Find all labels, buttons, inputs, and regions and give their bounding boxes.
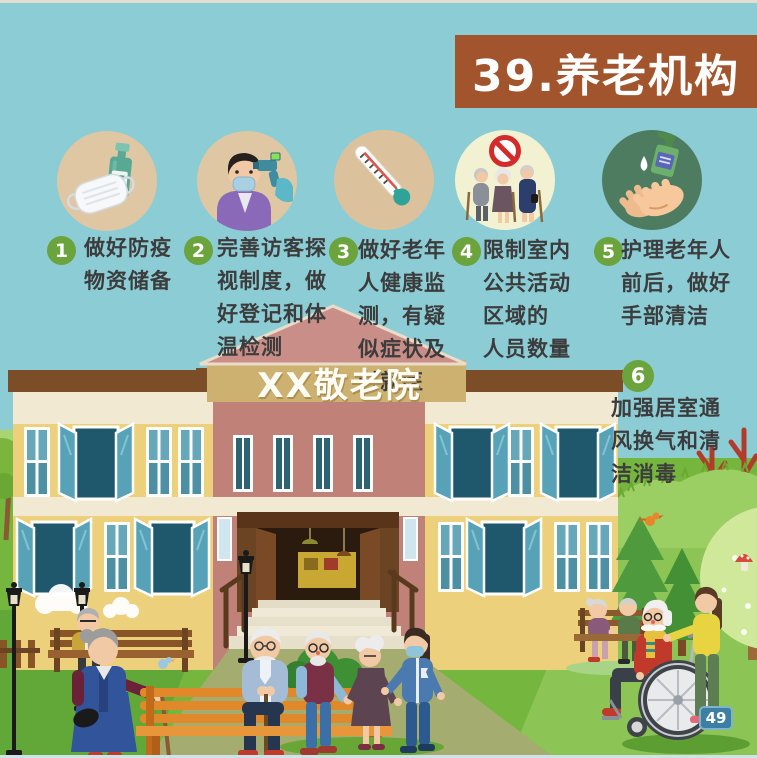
fence <box>0 640 40 668</box>
tip-1-text: 做好防疫 物资储备 <box>84 232 172 298</box>
poster-title: 39.养老机构 <box>472 40 740 104</box>
tip-2-number: 2 <box>184 236 213 265</box>
limit-indoor-crowd-icon <box>455 130 555 230</box>
icon-circle-2 <box>197 131 297 231</box>
tip-6-text: 加强居室通 风换气和清 洁消毒 <box>611 392 721 491</box>
title-banner: 39.养老机构 <box>455 35 757 108</box>
tip-3-number: 3 <box>329 237 358 266</box>
icon-circle-4 <box>455 130 555 230</box>
tip-4-number: 4 <box>452 237 481 266</box>
icon-circle-1 <box>57 131 157 231</box>
entrance <box>237 512 399 612</box>
tip-4-text: 限制室内 公共活动 区域的 人员数量 <box>483 234 571 366</box>
icon-circle-3 <box>334 130 434 230</box>
visitor-temperature-check-icon <box>197 131 297 231</box>
tip-5-number: 5 <box>594 237 623 266</box>
tip-5-text: 护理老年人 前后，做好 手部清洁 <box>621 234 731 333</box>
poster-canvas: 39.养老机构 <box>0 0 757 758</box>
tip-6-number: 6 <box>622 360 654 392</box>
tip-1-number: 1 <box>47 236 76 265</box>
tip-2-text: 完善访客探 视制度，做 好登记和体 温检测 <box>217 232 327 364</box>
top-border <box>0 0 757 3</box>
no-entry-sign <box>492 138 519 165</box>
thermometer-icon <box>334 130 434 230</box>
page-number-badge: 49 <box>699 706 733 730</box>
hand-hygiene-icon <box>602 130 702 230</box>
face-mask-and-sanitizer-icon <box>57 131 157 231</box>
icon-circle-5 <box>602 130 702 230</box>
building-sign: XX敬老院 <box>213 364 466 400</box>
